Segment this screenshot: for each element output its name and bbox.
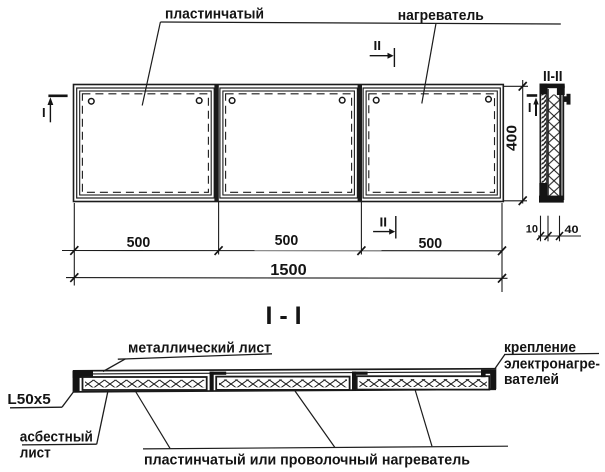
svg-text:40: 40 (565, 224, 579, 236)
svg-text:пластинчатый: пластинчатый (165, 6, 264, 23)
svg-text:500: 500 (275, 232, 299, 249)
svg-text:лист: лист (20, 445, 51, 462)
svg-text:10: 10 (526, 223, 538, 235)
svg-text:асбестный: асбестный (20, 429, 93, 446)
svg-text:500: 500 (127, 234, 151, 251)
svg-text:нагреватель: нагреватель (398, 7, 484, 24)
svg-text:1500: 1500 (270, 262, 307, 279)
svg-text:I: I (528, 100, 532, 115)
svg-text:пластинчатый или проволочный н: пластинчатый или проволочный нагреватель (144, 451, 470, 468)
svg-text:I: I (42, 105, 46, 120)
svg-text:500: 500 (419, 235, 443, 252)
svg-text:400: 400 (503, 125, 520, 151)
svg-text:вателей: вателей (504, 371, 559, 388)
svg-text:L50x5: L50x5 (7, 391, 50, 408)
svg-text:II-II: II-II (543, 68, 563, 85)
svg-text:I - I: I - I (266, 302, 302, 330)
svg-text:металлический лист: металлический лист (128, 339, 271, 356)
svg-text:II: II (380, 216, 388, 230)
svg-text:II: II (374, 39, 382, 53)
